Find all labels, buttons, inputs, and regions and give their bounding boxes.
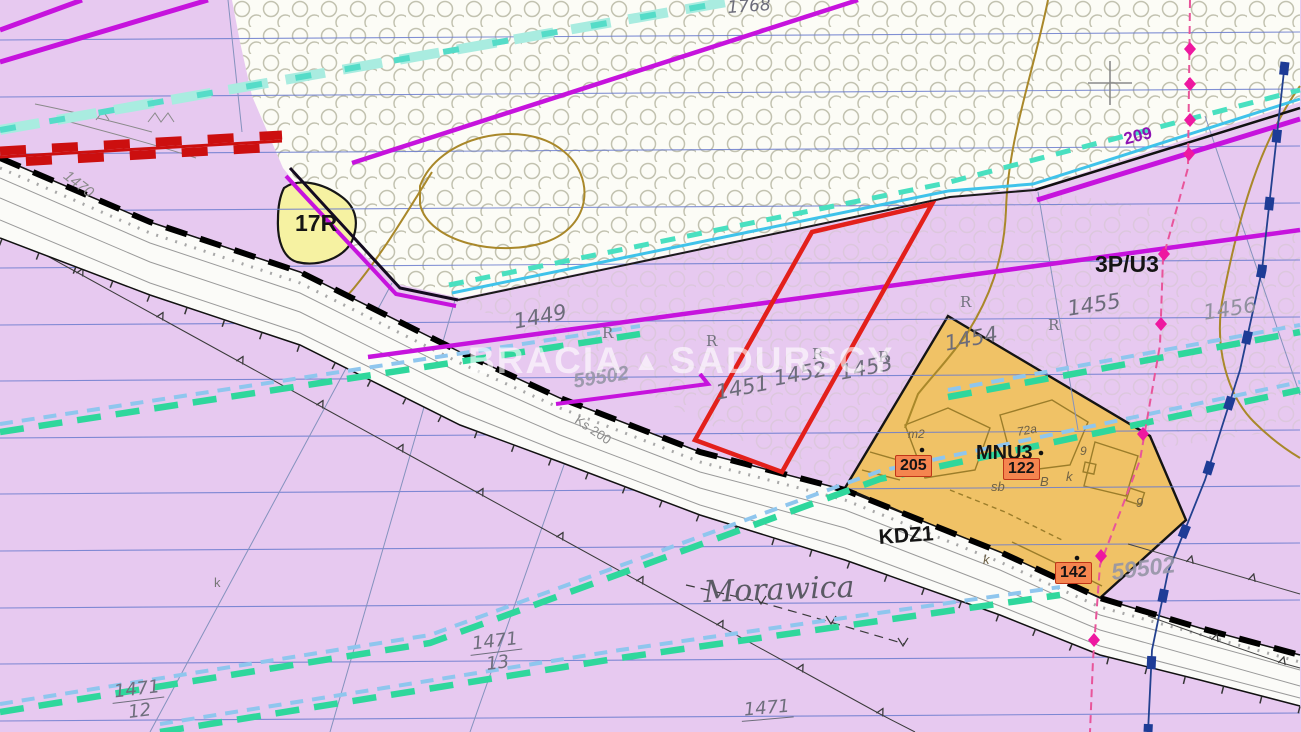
- land-use-label-m2: m2: [908, 428, 925, 440]
- watermark-text-1: BRACIA: [468, 340, 624, 382]
- land-use-letter-k: k: [214, 576, 221, 589]
- land-use-letter-r: R: [1048, 318, 1059, 333]
- land-use-number-9: 9: [1136, 496, 1143, 509]
- land-use-letter-b: B: [1040, 475, 1049, 488]
- address-marker-205: 205: [895, 455, 932, 477]
- parcel-number-1768: 1768: [727, 0, 771, 17]
- zone-label-17r: 17R: [295, 212, 337, 235]
- parcel-fraction-1471: 1471: [740, 695, 794, 721]
- watermark-logo-icon: ▲: [633, 348, 662, 375]
- land-use-label-72a: 72a: [1016, 423, 1038, 438]
- realtor-watermark: BRACIA ▲ SADURSCY: [468, 340, 894, 382]
- zoning-map[interactable]: 1768 209 17R 3P/U3 MNU3 KDZ1 Morawica 14…: [0, 0, 1301, 732]
- zone-label-3pu3: 3P/U3: [1095, 253, 1159, 276]
- parcel-fraction-1471-13: 1471 13: [468, 628, 525, 677]
- road-label-kdz1: KDZ1: [878, 523, 934, 548]
- land-use-number-9: 9: [1080, 445, 1087, 457]
- watermark-text-2: SADURSCY: [671, 340, 895, 382]
- land-use-letter-r: R: [960, 295, 971, 310]
- parcel-fraction-1471-12: 1471 12: [110, 676, 167, 725]
- land-use-letter-k: k: [983, 553, 990, 566]
- land-use-letter-k: k: [1066, 470, 1073, 483]
- address-marker-142: 142: [1055, 562, 1092, 584]
- land-use-letter-r: R: [602, 326, 613, 341]
- land-use-label-sb: sb: [991, 480, 1005, 493]
- address-marker-122: 122: [1003, 458, 1040, 480]
- place-name: Morawica: [703, 573, 855, 608]
